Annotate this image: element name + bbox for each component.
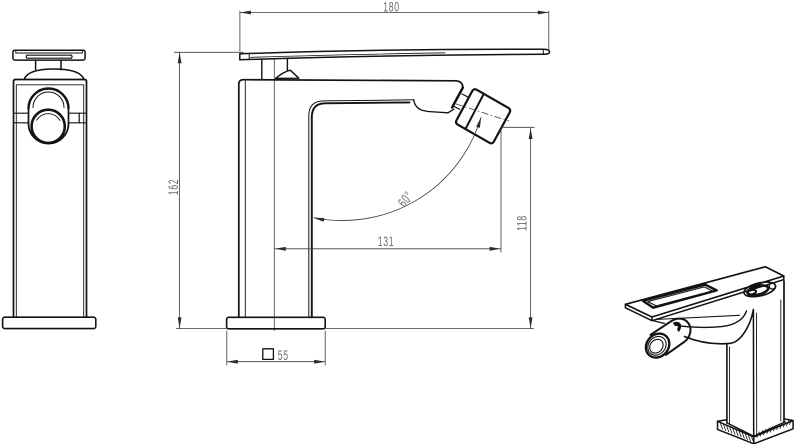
svg-text:55: 55: [278, 348, 289, 364]
svg-text:118: 118: [514, 215, 530, 231]
svg-text:131: 131: [378, 234, 395, 250]
svg-text:60°: 60°: [395, 189, 417, 211]
svg-text:180: 180: [383, 0, 400, 15]
svg-text:162: 162: [166, 179, 182, 196]
